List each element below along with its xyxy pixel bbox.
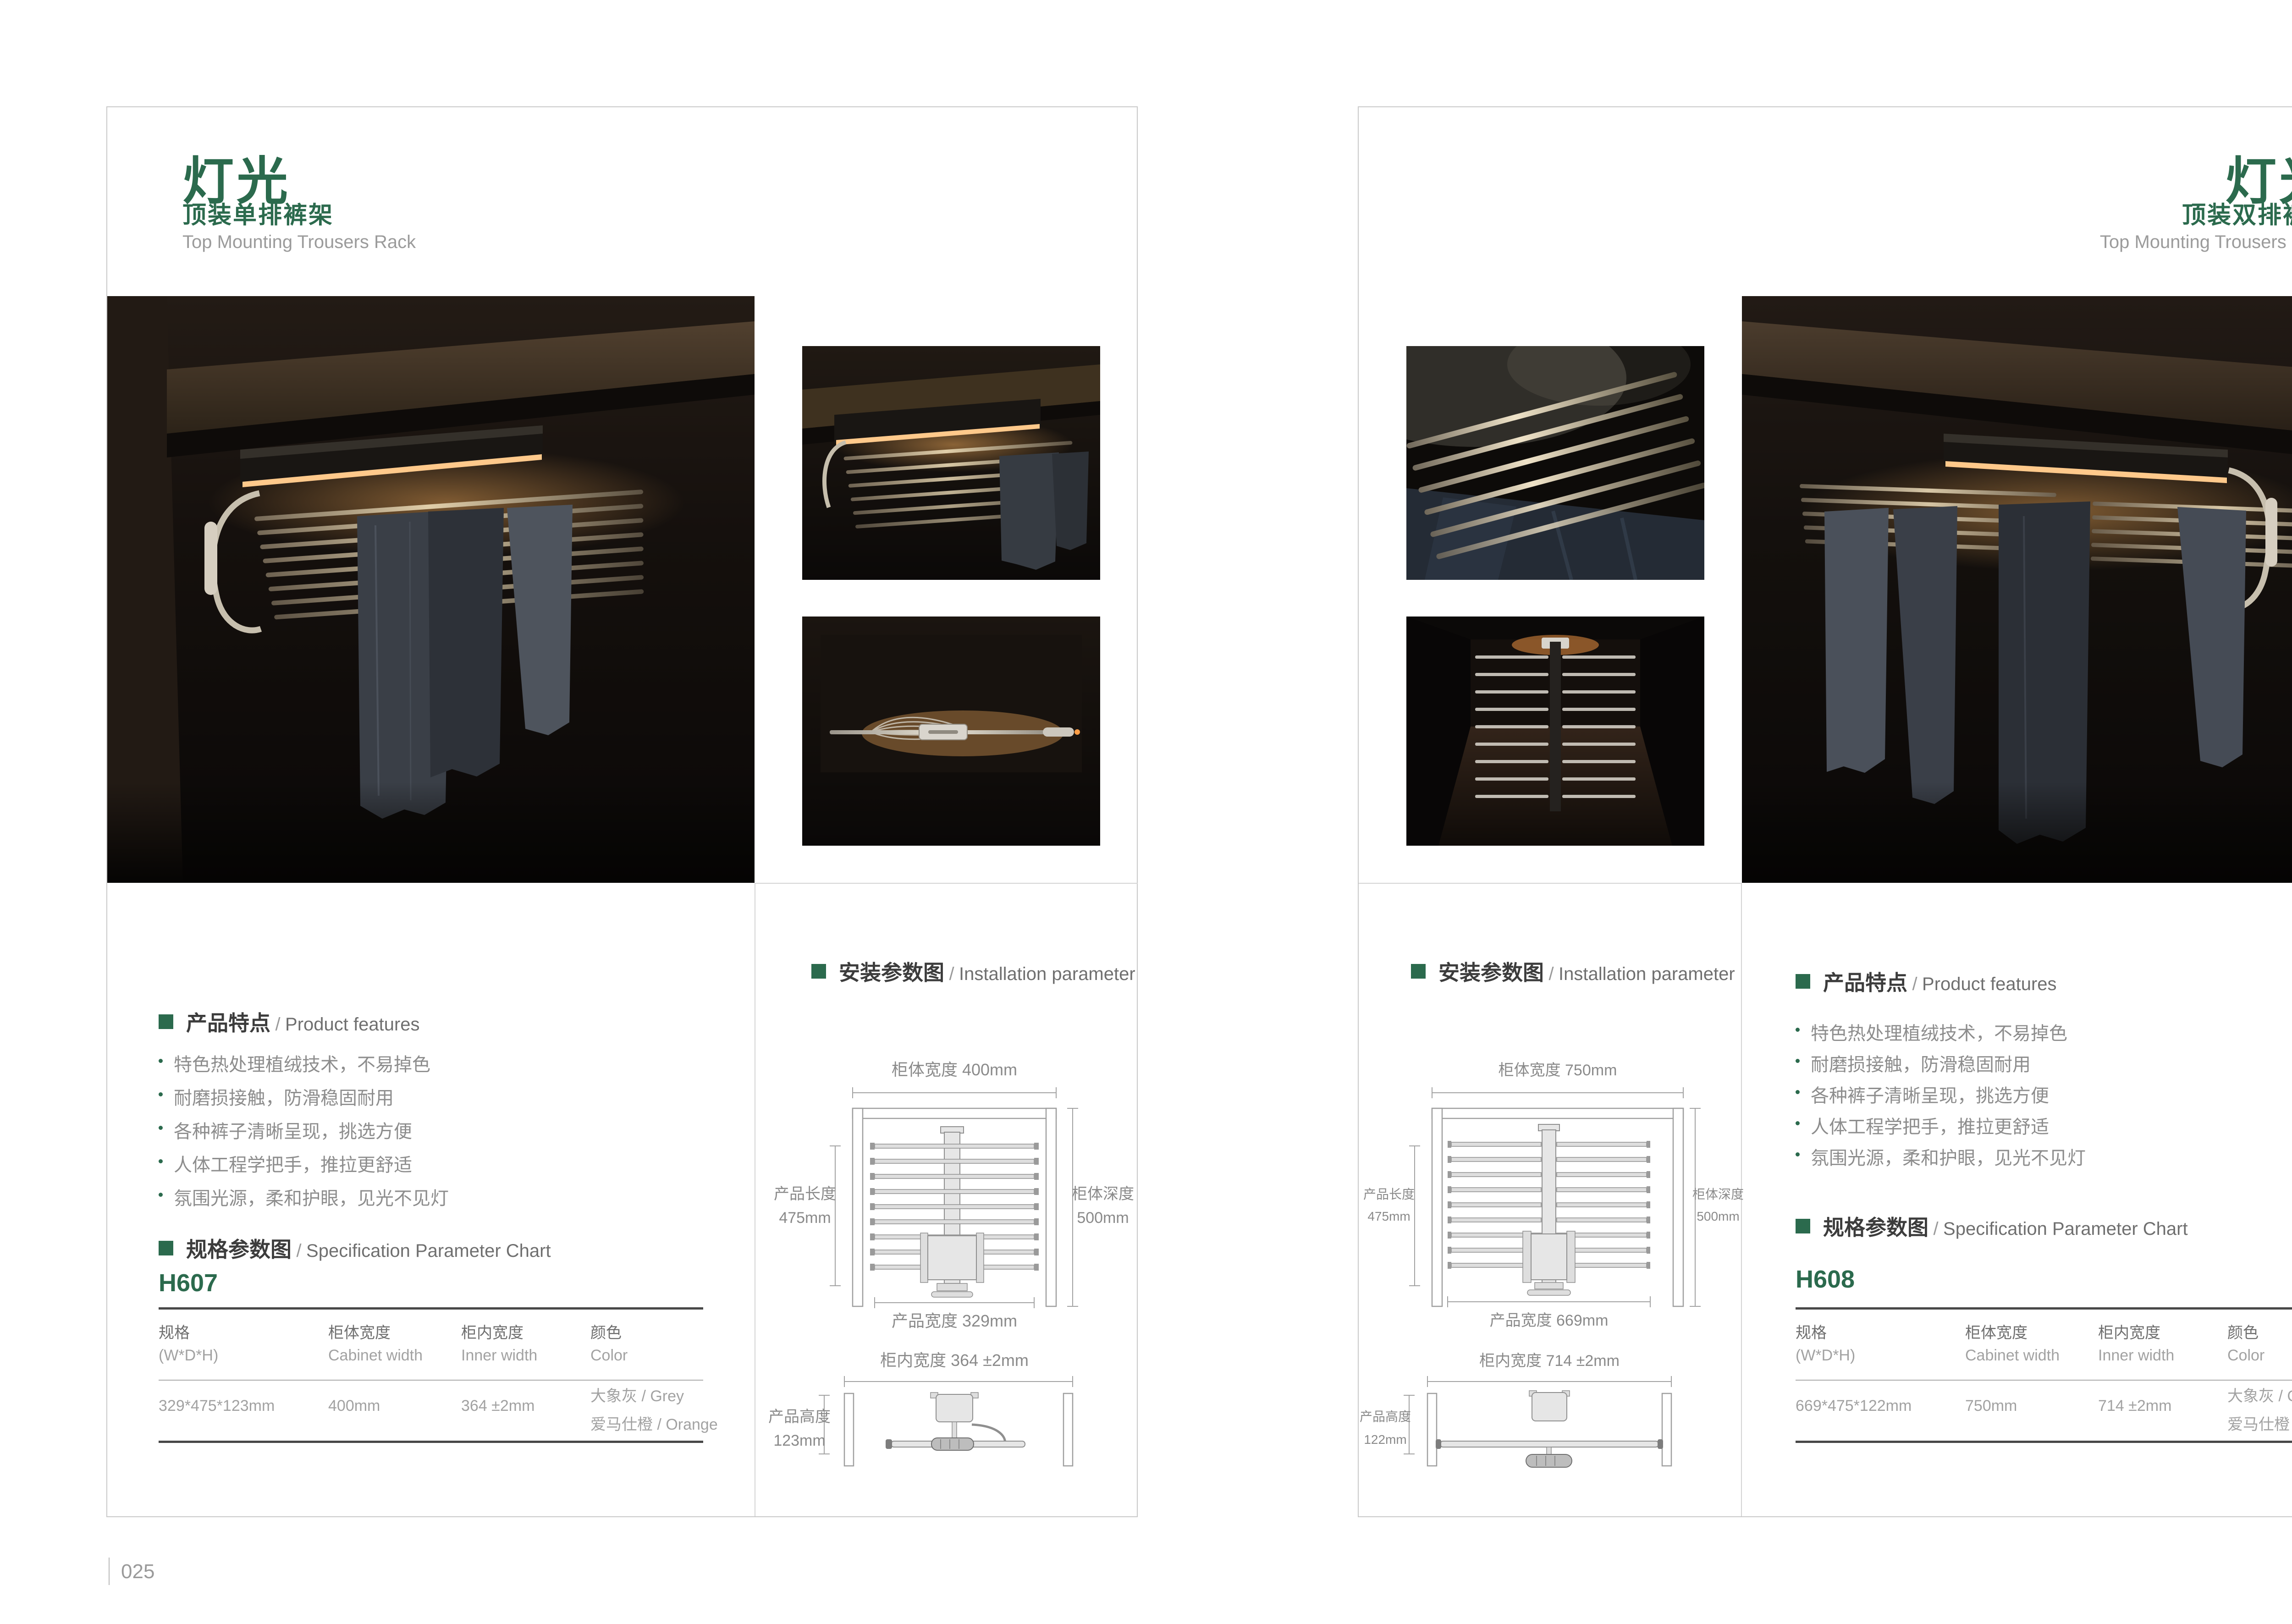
left-installation-label-en: Installation parameter — [959, 964, 1135, 984]
col-header: 柜体宽度 — [1965, 1320, 2028, 1343]
spec-color-2: 爱马仕橙 / Orange — [2227, 1412, 2292, 1434]
page-left-subtitle: 顶装单排裤架 — [182, 204, 334, 227]
spec-inner-width: 714 ±2mm — [2098, 1397, 2171, 1415]
left-card-column-divider — [755, 883, 755, 1516]
dim-label-product-width: 产品宽度 669mm — [1490, 1312, 1609, 1329]
page-left-subtitle-en: Top Mounting Trousers Rack — [182, 233, 416, 251]
dim-label-inner-width: 柜内宽度 364 ±2mm — [880, 1351, 1029, 1370]
feature-item: 特色热处理植绒技术，不易掉色 — [159, 1050, 430, 1076]
feature-text: 各种裤子清晰呈现，挑选方便 — [1811, 1081, 2049, 1107]
col-header-en: Color — [2227, 1347, 2264, 1365]
spec-inner-width: 364 ±2mm — [461, 1397, 534, 1415]
photo-left-main-trousers-rack — [107, 296, 755, 883]
right-installation-header: 安装参数图 / Installation parameter — [1411, 956, 1735, 986]
separator: / — [1912, 974, 1917, 994]
left-plan-diagram: 柜体宽度 400mm 产品长度 475mm 柜体深度 500mm 产品宽度 32… — [776, 1054, 1133, 1329]
photo-right-detail-topdown — [1406, 617, 1704, 846]
feature-item: 人体工程学把手，推拉更舒适 — [159, 1150, 412, 1177]
right-model-number: H608 — [1796, 1265, 1855, 1294]
col-header-en: Cabinet width — [328, 1347, 423, 1365]
green-square-icon — [159, 1014, 173, 1029]
feature-text: 各种裤子清晰呈现，挑选方便 — [174, 1117, 412, 1143]
dim-value-product-length: 475mm — [1367, 1209, 1410, 1223]
feature-item: 氛围光源，柔和护眼，见光不见灯 — [159, 1184, 449, 1210]
page-left-title: 灯光 — [182, 156, 291, 207]
photo-right-main-double-rack — [1742, 296, 2292, 883]
table-rule-bottom — [1796, 1441, 2292, 1443]
feature-item: 各种裤子清晰呈现，挑选方便 — [1796, 1081, 2049, 1107]
right-spec-label-en: Specification Parameter Chart — [1943, 1219, 2188, 1239]
left-page-number: 025 — [121, 1560, 154, 1583]
page-right-subtitle-en: Top Mounting Trousers Rack — [2100, 233, 2292, 251]
feature-text: 氛围光源，柔和护眼，见光不见灯 — [174, 1184, 449, 1210]
table-rule-top — [159, 1307, 703, 1310]
feature-item: 氛围光源，柔和护眼，见光不见灯 — [1796, 1143, 2086, 1170]
right-features-header: 产品特点 / Product features — [1796, 966, 2057, 996]
separator: / — [1548, 964, 1554, 984]
col-header-en: Color — [590, 1347, 628, 1365]
page-right-subtitle: 顶装双排裤架 — [2182, 204, 2292, 227]
separator: / — [949, 964, 954, 984]
feature-text: 人体工程学把手，推拉更舒适 — [1811, 1112, 2049, 1139]
green-square-icon — [1411, 964, 1426, 979]
spec-size: 329*475*123mm — [159, 1397, 275, 1415]
left-installation-label: 安装参数图 — [839, 961, 944, 985]
rack-front-double — [1436, 1391, 1663, 1467]
left-spec-table: 规格 (W*D*H) 柜体宽度 Cabinet width 柜内宽度 Inner… — [159, 1307, 703, 1443]
col-header-en: Inner width — [2098, 1347, 2174, 1365]
col-header: 规格 — [1796, 1320, 1827, 1343]
left-features-label: 产品特点 — [186, 1011, 270, 1035]
photo-right-detail-bars-denim — [1406, 346, 1704, 580]
spec-cabinet-width: 750mm — [1965, 1397, 2017, 1415]
col-header-en: Inner width — [461, 1347, 537, 1365]
left-features-label-en: Product features — [285, 1014, 420, 1035]
spec-color-1: 大象灰 / Grey — [590, 1383, 684, 1406]
left-front-diagram: 柜内宽度 364 ±2mm 产品高度 123mm — [776, 1348, 1133, 1481]
col-header: 柜内宽度 — [461, 1320, 523, 1343]
green-square-icon — [1796, 1219, 1810, 1233]
right-features-label-en: Product features — [1922, 974, 2057, 994]
green-square-icon — [159, 1241, 173, 1255]
feature-item: 耐磨损接触，防滑稳固耐用 — [159, 1083, 394, 1110]
photo-left-detail-rack-lit — [802, 346, 1100, 580]
rack-front-single — [886, 1393, 1025, 1450]
separator: / — [1933, 1219, 1938, 1239]
col-header: 颜色 — [2227, 1320, 2259, 1343]
left-card-photo-band-rule — [755, 883, 1138, 884]
dim-value-cabinet-depth: 500mm — [1077, 1209, 1129, 1227]
left-installation-header: 安装参数图 / Installation parameter — [811, 956, 1135, 986]
photo-left-detail-mechanism — [802, 617, 1100, 846]
right-features-label: 产品特点 — [1823, 971, 1907, 995]
dim-value-cabinet-depth: 500mm — [1697, 1209, 1739, 1223]
feature-item: 耐磨损接触，防滑稳固耐用 — [1796, 1050, 2031, 1076]
col-header-en: (W*D*H) — [159, 1347, 218, 1365]
dim-label-cabinet-depth: 柜体深度 — [1072, 1185, 1134, 1203]
left-model-number: H607 — [159, 1269, 218, 1297]
feature-text: 氛围光源，柔和护眼，见光不见灯 — [1811, 1143, 2086, 1170]
left-spec-label: 规格参数图 — [186, 1238, 292, 1261]
right-card-photo-band-rule — [1359, 883, 1741, 884]
table-rule-mid — [159, 1380, 703, 1381]
spec-color-2: 爱马仕橙 / Orange — [590, 1412, 718, 1434]
green-square-icon — [811, 964, 826, 979]
dim-value-product-height: 123mm — [773, 1432, 825, 1449]
dim-label-product-height: 产品高度 — [1360, 1409, 1411, 1424]
table-rule-bottom — [159, 1441, 703, 1443]
table-rule-top — [1796, 1307, 2292, 1310]
left-spec-label-en: Specification Parameter Chart — [306, 1241, 551, 1261]
dim-value-product-length: 475mm — [779, 1209, 831, 1227]
dim-value-product-height: 122mm — [1364, 1432, 1406, 1447]
feature-text: 特色热处理植绒技术，不易掉色 — [174, 1050, 430, 1076]
feature-item: 各种裤子清晰呈现，挑选方便 — [159, 1117, 412, 1143]
col-header-en: Cabinet width — [1965, 1347, 2060, 1365]
right-spec-table: 规格 (W*D*H) 柜体宽度 Cabinet width 柜内宽度 Inner… — [1796, 1307, 2292, 1443]
right-installation-label-en: Installation parameter — [1559, 964, 1735, 984]
feature-text: 特色热处理植绒技术，不易掉色 — [1811, 1018, 2067, 1045]
spec-color-1: 大象灰 / Grey — [2227, 1383, 2292, 1406]
green-square-icon — [1796, 974, 1810, 989]
right-spec-label: 规格参数图 — [1823, 1216, 1928, 1239]
page-right-title: 灯光 — [2225, 156, 2292, 207]
spec-size: 669*475*122mm — [1796, 1397, 1912, 1415]
feature-text: 耐磨损接触，防滑稳固耐用 — [174, 1083, 394, 1110]
dim-label-product-height: 产品高度 — [768, 1408, 831, 1426]
right-installation-label: 安装参数图 — [1438, 961, 1544, 985]
spec-cabinet-width: 400mm — [328, 1397, 380, 1415]
separator: / — [275, 1014, 280, 1035]
col-header-en: (W*D*H) — [1796, 1347, 1855, 1365]
catalog-spread: { "ui": { "sep": "/" }, "colors": { "acc… — [0, 0, 2292, 1624]
feature-item: 特色热处理植绒技术，不易掉色 — [1796, 1018, 2067, 1045]
dim-label-product-length: 产品长度 — [1363, 1187, 1415, 1201]
col-header: 颜色 — [590, 1320, 622, 1343]
feature-text: 人体工程学把手，推拉更舒适 — [174, 1150, 412, 1177]
rack-plan-double — [1448, 1124, 1650, 1295]
right-plan-diagram: 柜体宽度 750mm — [1363, 1054, 1736, 1329]
dim-label-inner-width: 柜内宽度 714 ±2mm — [1479, 1352, 1620, 1370]
left-features-header: 产品特点 / Product features — [159, 1007, 420, 1037]
rack-plan-single — [870, 1127, 1039, 1297]
col-header: 规格 — [159, 1320, 190, 1343]
dim-label-cabinet-width: 柜体宽度 750mm — [1499, 1062, 1617, 1079]
dim-label-product-width: 产品宽度 329mm — [892, 1311, 1017, 1330]
feature-item: 人体工程学把手，推拉更舒适 — [1796, 1112, 2049, 1139]
col-header: 柜内宽度 — [2098, 1320, 2160, 1343]
dim-label-cabinet-depth: 柜体深度 — [1692, 1187, 1744, 1201]
table-rule-mid — [1796, 1380, 2292, 1381]
left-spec-header: 规格参数图 / Specification Parameter Chart — [159, 1233, 551, 1263]
left-pageno-tick — [109, 1558, 110, 1585]
separator: / — [296, 1241, 301, 1261]
right-front-diagram: 柜内宽度 714 ±2mm 产品高度 122mm — [1363, 1348, 1736, 1481]
feature-text: 耐磨损接触，防滑稳固耐用 — [1811, 1050, 2031, 1076]
col-header: 柜体宽度 — [328, 1320, 391, 1343]
right-spec-header: 规格参数图 / Specification Parameter Chart — [1796, 1211, 2188, 1241]
dim-label-product-length: 产品长度 — [774, 1185, 836, 1203]
dim-label-cabinet-width: 柜体宽度 400mm — [892, 1060, 1017, 1079]
